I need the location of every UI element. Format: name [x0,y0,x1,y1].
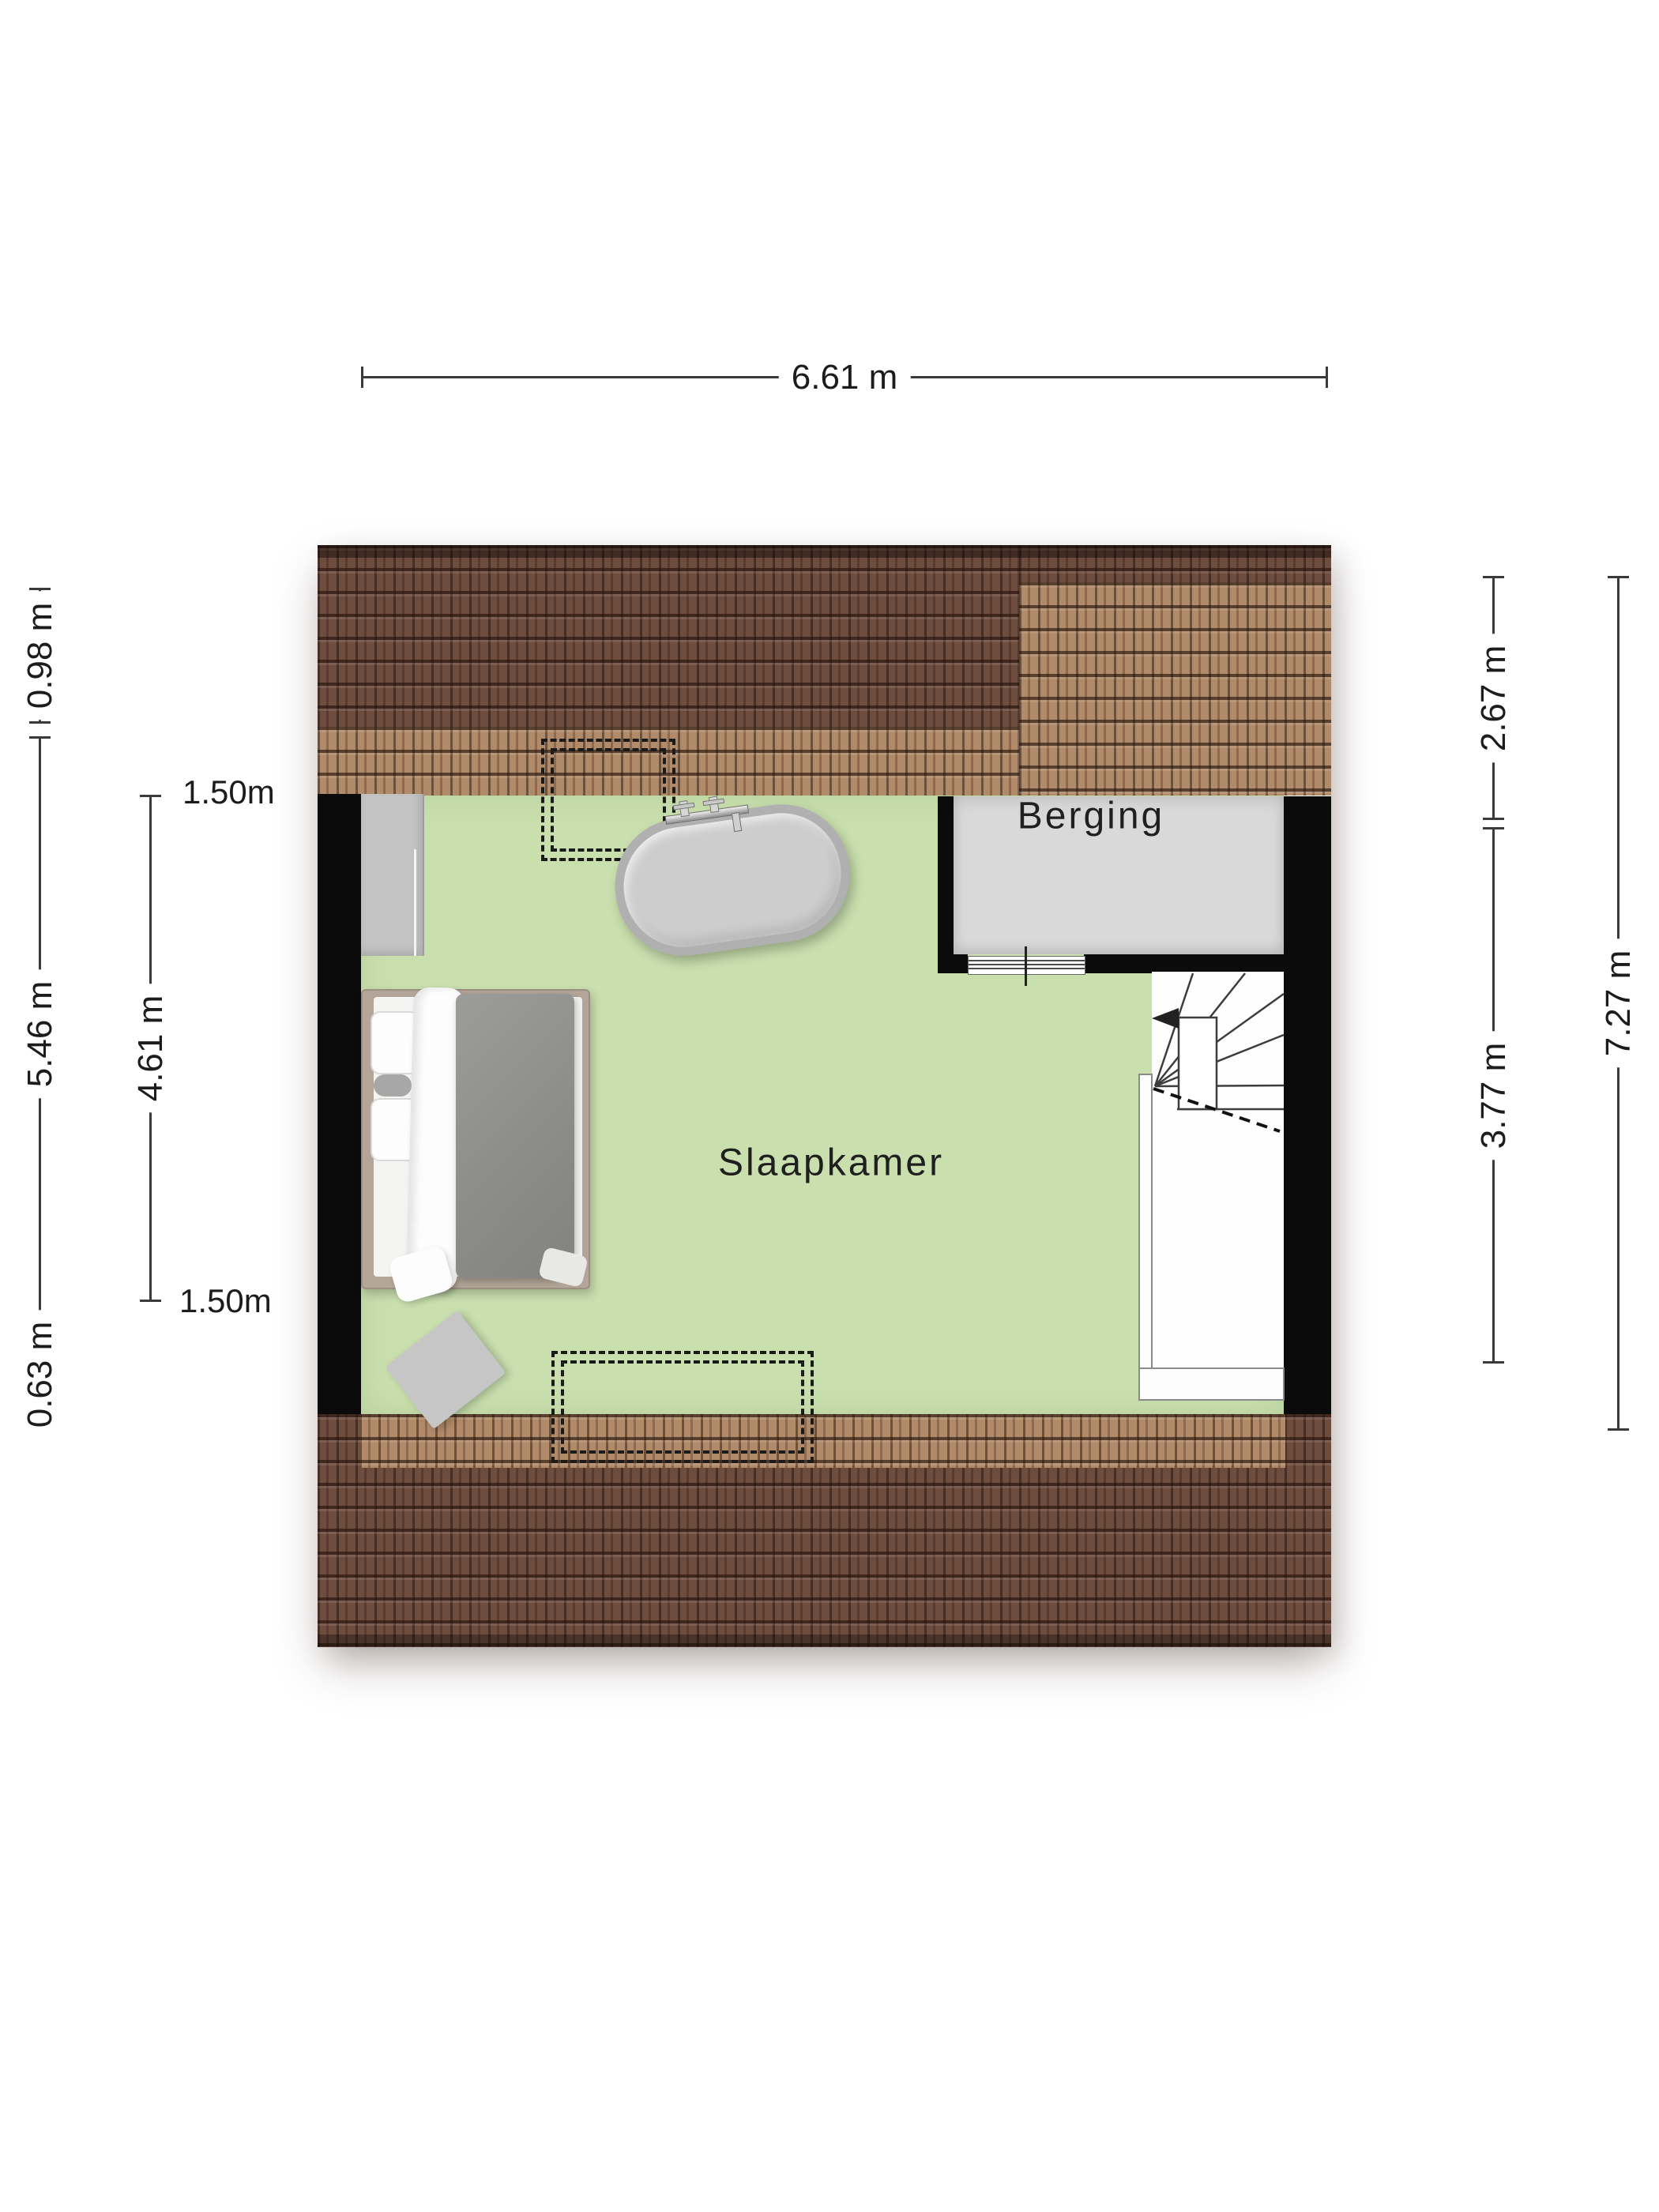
roof-eave-edge [318,1635,1331,1647]
dim-label: 3.77 m [1473,1031,1515,1160]
dim-right-inner-seg-1: 2.67 m [1492,577,1495,819]
door-leaf [1025,946,1027,986]
roof-seam [1018,545,1020,796]
dormer-dashed-outline-bottom-inner [561,1360,804,1454]
dim-top-label: 6.61 m [779,356,911,399]
dim-label: 0.63 m [19,1310,62,1439]
bed-duvet [456,994,574,1278]
dim-top: 6.61 m [362,376,1327,378]
stairwell-side-wall [1139,1074,1152,1400]
dim-tick [361,367,363,388]
dim-label: 0.98 m [19,592,62,720]
dim-right-outer: 7.27 m [1617,577,1619,1430]
winder-staircase [1130,972,1331,1414]
floor-plan: Berging [318,545,1331,1647]
dim-label: 4.61 m [130,984,172,1113]
bedroom-label: Slaapkamer [718,1142,944,1185]
bed-bolster [374,1074,412,1097]
stairwell-bottom-ledge [1139,1368,1284,1400]
storage-bottom-wall [1084,954,1284,973]
dim-tick [1326,367,1328,388]
roof-strip-top-left-dark [318,545,1019,727]
roof-strip-top-right-light [1019,582,1331,796]
dim-label: 7.27 m [1597,939,1640,1068]
knee-wall-marker-bottom: 1.50m [179,1282,272,1320]
dim-right-inner-seg-2: 3.77 m [1492,828,1495,1363]
roof-strip-bottom-light [359,1414,1285,1468]
storage-room-label: Berging [1018,795,1164,838]
storage-left-wall [938,796,954,972]
wardrobe [361,794,424,956]
dim-left-outer-seg-3: 0.63 m [39,1334,41,1414]
left-wall [318,794,361,1414]
dim-label: 2.67 m [1473,634,1515,762]
dim-left-outer-seg-2: 5.46 m [39,737,41,1331]
wardrobe-door-gap [414,849,416,956]
knee-wall-marker-top: 1.50m [182,773,275,811]
dim-left-outer-seg-1: 0.98 m [39,589,41,723]
dim-left-inner: 4.61 m [149,796,152,1301]
stair-landing-post [1179,1018,1217,1109]
dim-label: 5.46 m [19,970,62,1099]
double-bed [361,989,590,1289]
storage-wall-corner [938,954,968,973]
roof-ridge-edge [318,545,1331,558]
